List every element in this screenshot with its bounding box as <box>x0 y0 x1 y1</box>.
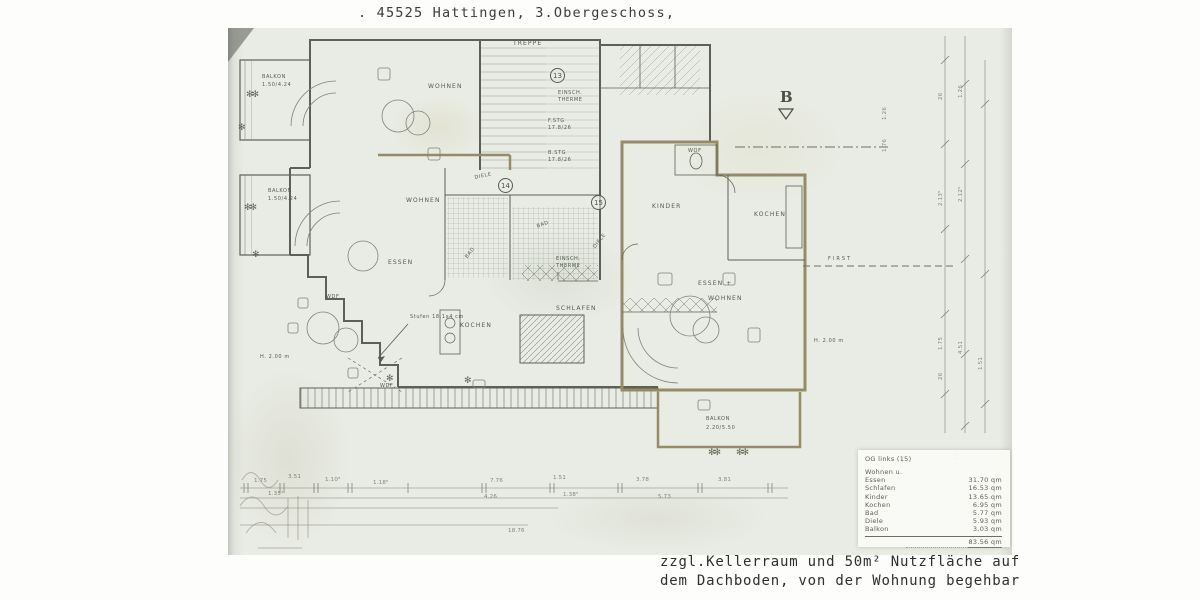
section-arrow-icon <box>778 108 794 120</box>
pen-marks-layer <box>240 473 308 549</box>
dimension-value: 1.26 <box>958 85 964 98</box>
therme-note: THERME <box>558 97 583 103</box>
unit-number-badge: 14 <box>498 178 513 193</box>
room-label-kochen: KOCHEN <box>754 211 786 218</box>
plant-icon: ✻✻ <box>708 448 719 458</box>
balcony-label: BALKON <box>262 74 286 80</box>
hatch-layer <box>240 42 717 408</box>
balcony-dim: 1.50/4.24 <box>262 82 291 88</box>
dimension-value: 1.18⁵ <box>373 480 388 486</box>
dimension-value: 1.26 <box>882 107 888 120</box>
dimension-value: 1.51 <box>553 475 566 481</box>
dimension-value: 26 <box>938 93 944 100</box>
footer-note-line2: dem Dachboden, von der Wohnung begehbar <box>660 572 1020 591</box>
page-title: . 45525 Hattingen, 3.Obergeschoss, <box>358 5 675 21</box>
closet-label: WOF <box>688 148 702 154</box>
row-value: 16.53 qm <box>968 484 1002 492</box>
room-label-wohnen: WOHNEN <box>708 295 743 302</box>
unit-number-badge: 15 <box>591 195 606 210</box>
row-label: Essen <box>865 476 886 484</box>
footer-note-line1: zzgl.Kellerraum und 50m² Nutzfläche auf <box>660 553 1020 572</box>
room-label-wohnen: WOHNEN <box>406 197 441 204</box>
dimension-value: 1.76 <box>882 139 888 152</box>
row-label: Balkon <box>865 525 889 533</box>
room-label-kinder: KINDER <box>652 203 681 210</box>
room-label-kochen: KOCHEN <box>460 322 492 329</box>
plant-icon: ✻✻ <box>736 448 747 458</box>
table-row: Diele 5.93 qm <box>865 517 1002 525</box>
room-label-essen: ESSEN <box>388 259 413 266</box>
dimension-value: 1.10⁵ <box>325 477 340 483</box>
row-label: Schlafen <box>865 484 895 492</box>
plant-icon: ✻ <box>252 250 258 260</box>
plant-icon: ✻✻ <box>244 203 255 213</box>
dimension-value: 5.73 <box>658 494 671 500</box>
row-value: 5.77 qm <box>973 509 1002 517</box>
dimension-value: 1.38⁵ <box>563 492 578 498</box>
height-note: H. 2.00 m <box>260 354 290 360</box>
dimension-value: 3.78 <box>636 477 649 483</box>
row-label: Wohnen u. <box>865 468 902 476</box>
room-label-essen: ESSEN + <box>698 280 732 287</box>
floorplan-scan: BALKON 1.50/4.24 BALKON 1.50/4.24 WOHNEN… <box>228 28 1012 555</box>
stair-note-value: 17.8/26 <box>548 157 571 163</box>
dimension-value: 1.35¹ <box>268 491 283 497</box>
plant-icon: ✻ <box>238 123 244 133</box>
screenshot-root: . 45525 Hattingen, 3.Obergeschoss, <box>0 0 1200 600</box>
table-row: Bad 5.77 qm <box>865 509 1002 517</box>
row-value: 6.95 qm <box>973 501 1002 509</box>
row-value: 5.93 qm <box>973 517 1002 525</box>
dimension-value: 3.81 <box>718 477 731 483</box>
reference-lines-layer <box>348 147 956 392</box>
dimension-value: 26 <box>938 373 944 380</box>
row-label: Kochen <box>865 501 891 509</box>
scan-corner-artifact <box>228 28 254 62</box>
plant-icon: ✻ <box>386 374 392 384</box>
steps-note: Stufen 18.1x4 cm <box>410 314 464 320</box>
row-label: Diele <box>865 517 883 525</box>
row-label: Bad <box>865 509 878 517</box>
dimension-value: 2.13⁵ <box>938 191 944 206</box>
table-total-row: 83.56 qm <box>865 536 1002 546</box>
dimension-value: 3.51 <box>288 474 301 480</box>
table-row: Wohnen u. <box>865 468 1002 476</box>
row-label: Kinder <box>865 493 888 501</box>
section-marker: B <box>780 88 792 106</box>
therme-note: THERME <box>556 263 581 269</box>
area-table: OG links (15) Wohnen u. Essen 31.70 qm S… <box>858 450 1010 547</box>
table-row: Essen 31.70 qm <box>865 476 1002 484</box>
balcony-label: BALKON <box>268 188 292 194</box>
row-value: 3.03 qm <box>973 525 1002 533</box>
table-row: Kochen 6.95 qm <box>865 501 1002 509</box>
row-value: 31.70 qm <box>968 476 1002 484</box>
dimension-total: 18.76 <box>508 528 525 534</box>
table-row: Schlafen 16.53 qm <box>865 484 1002 492</box>
room-label-wohnen: WOHNEN <box>428 83 463 90</box>
dimension-value: 4.51 <box>958 341 964 354</box>
ridge-label: FIRST <box>828 256 852 262</box>
dimension-value: 1.75 <box>938 337 944 350</box>
height-note: H. 2.00 m <box>814 338 844 344</box>
dimension-value: 1.51 <box>978 357 984 370</box>
room-label-treppe: TREPPE <box>513 40 542 47</box>
dimension-value: 7.76 <box>490 478 503 484</box>
stair-note-value: 17.8/26 <box>548 125 571 131</box>
plant-icon: ✻✻ <box>246 90 257 100</box>
unit-number-badge: 13 <box>550 68 565 83</box>
table-footer-dots <box>906 547 1002 548</box>
dimension-value: 2.12⁵ <box>958 187 964 202</box>
stair-note: F.STG <box>548 118 565 124</box>
area-table-title: OG links (15) <box>865 455 1002 463</box>
footer-note: zzgl.Kellerraum und 50m² Nutzfläche auf … <box>660 553 1020 591</box>
stair-note: B.STG <box>548 150 566 156</box>
dimension-value: 1.75 <box>254 478 267 484</box>
table-row: Kinder 13.65 qm <box>865 493 1002 501</box>
therme-note: EINSCH. <box>556 256 581 262</box>
dimension-value: 4.26 <box>484 494 497 500</box>
note-wdf: WDF <box>326 294 339 300</box>
table-row: Balkon 3.03 qm <box>865 525 1002 533</box>
balcony-dim: 1.50/4.24 <box>268 196 297 202</box>
balcony-dim: 2.20/5.50 <box>706 425 735 431</box>
row-value: 13.65 qm <box>968 493 1002 501</box>
therme-note: EINSCH. <box>558 90 583 96</box>
balcony-label: BALKON <box>706 416 730 422</box>
room-label-schlafen: SCHLAFEN <box>556 305 597 312</box>
plant-icon: ✻ <box>464 376 470 386</box>
